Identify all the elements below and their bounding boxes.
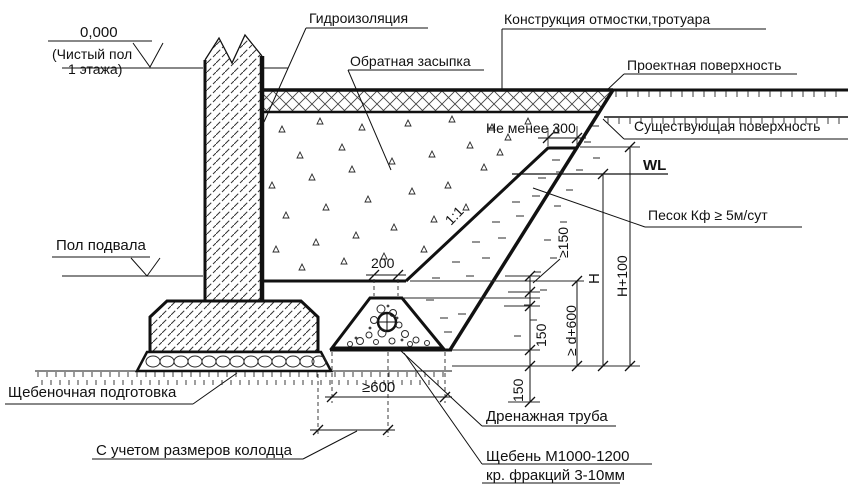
gravel-prep-label: Щебеночная подготовка: [8, 384, 177, 401]
drain-pipe-label: Дренажная труба: [486, 408, 608, 425]
dim-min150: ≥150: [555, 227, 571, 258]
drain-pipe: [378, 313, 396, 331]
foundation-drainage-drawing: 0,000 (Чистый пол 1 этажа) Пол подвала Г…: [0, 0, 850, 488]
dim-h: H: [586, 273, 603, 284]
foundation-wall: [205, 35, 262, 301]
dim-200: 200: [371, 255, 395, 271]
pavement-band: [262, 90, 613, 112]
gravel-prep-layer: [137, 352, 331, 371]
design-surface-label: Проектная поверхность: [627, 57, 781, 73]
zero-level-value: 0,000: [80, 24, 118, 41]
pavement-label: Конструкция отмостки,тротуара: [504, 11, 710, 27]
basement-floor-label: Пол подвала: [56, 237, 146, 254]
crushed-stone-label-2: кр. фракций 3-10мм: [486, 467, 625, 484]
zero-level-note-2: 1 этажа): [68, 61, 122, 77]
footing: [150, 301, 318, 352]
backfill-label: Обратная засыпка: [350, 53, 471, 69]
zero-level-note-1: (Чистый пол: [52, 46, 132, 62]
dim-150-lower: 150: [510, 378, 526, 402]
well-size-label: С учетом размеров колодца: [96, 442, 293, 459]
dim-150-upper: 150: [533, 323, 549, 347]
waterproofing-label: Гидроизоляция: [309, 10, 408, 26]
sand-label: Песок Кф ≥ 5м/сут: [648, 207, 768, 223]
dim-d-plus-600: ≥ d+600: [563, 305, 579, 356]
water-level-label: WL: [643, 157, 666, 174]
existing-surface-label: Существующая поверхность: [634, 118, 820, 134]
crushed-stone-label-1: Щебень М1000-1200: [486, 448, 630, 465]
dim-min600: ≥600: [362, 379, 395, 396]
dim-h-plus-100: H+100: [614, 255, 630, 297]
dim-min300: Не менее 300: [486, 120, 576, 136]
